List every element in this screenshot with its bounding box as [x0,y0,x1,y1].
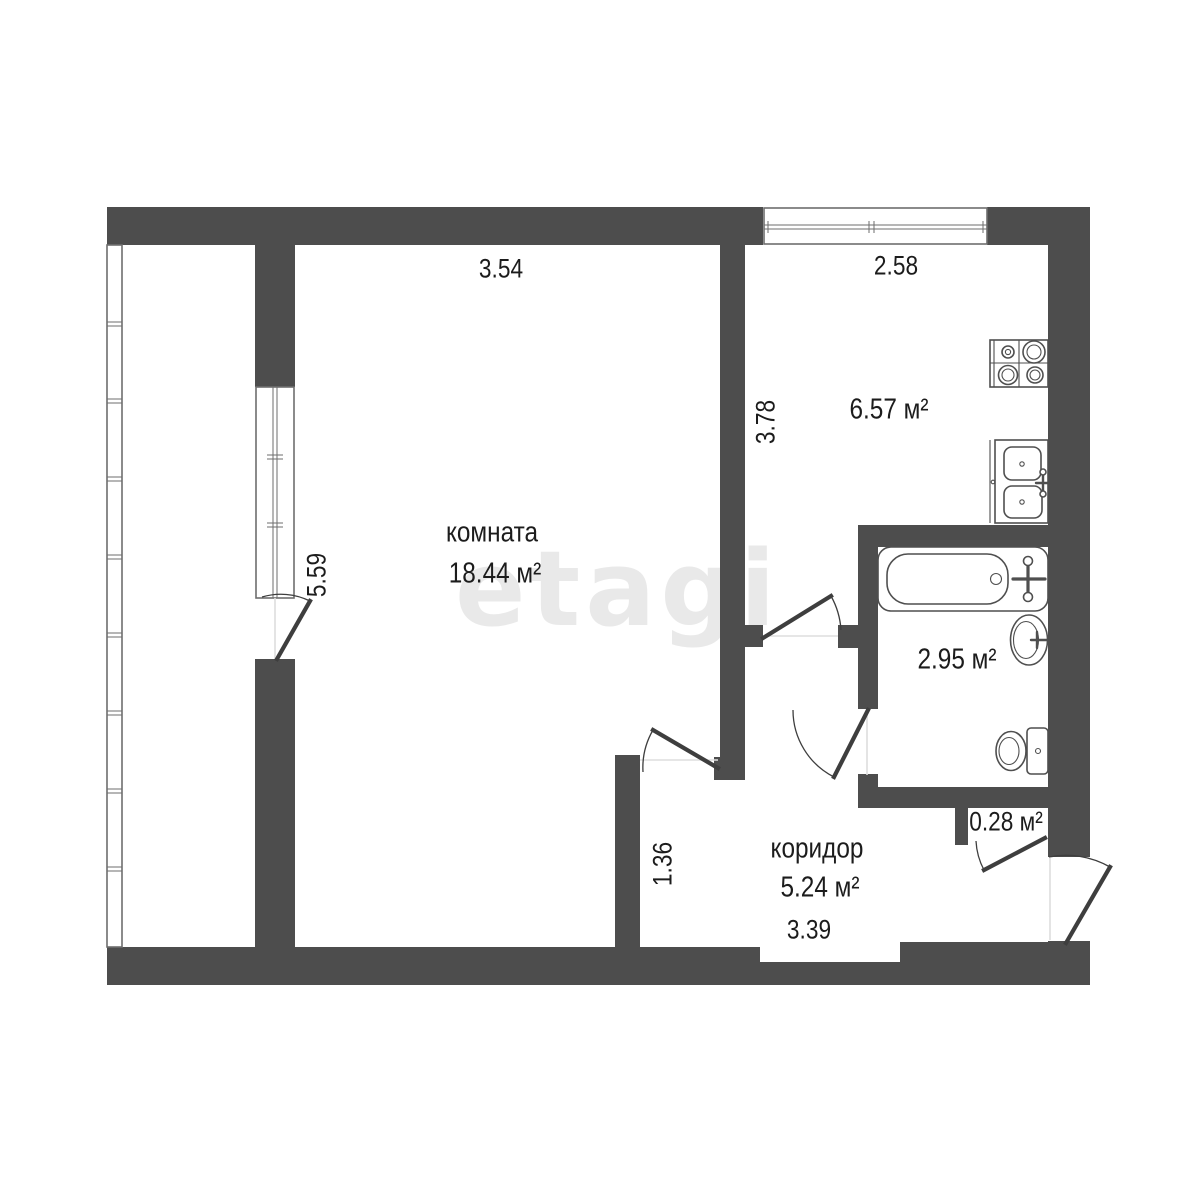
floor-plan: etagi [0,0,1194,1192]
door-kitchen [763,596,841,638]
toilet-icon [996,728,1048,774]
dim-room-depth: 5.59 [304,553,331,597]
room-name-label: комната [446,519,538,548]
dim-kitchen-depth: 3.78 [753,400,780,444]
dim-kitchen-width: 2.58 [874,253,918,280]
window-kitchen [764,208,987,244]
door-entrance [1049,855,1110,943]
door-room [640,730,718,772]
door-closet [976,838,1045,870]
bathtub-icon [878,547,1048,611]
closet-area-label: 0.28 м² [969,809,1043,836]
door-balcony [262,594,310,659]
plan-symbols [0,0,1194,1192]
dim-room-width: 3.54 [479,256,523,283]
window-balcony-glazing [107,245,122,947]
kitchen-area-label: 6.57 м² [849,396,928,425]
corridor-name-label: коридор [771,835,864,864]
dim-corridor-depth: 1.36 [650,842,677,886]
window-room-balcony [256,387,294,598]
corridor-area-label: 5.24 м² [780,874,859,903]
door-bathroom [793,709,868,777]
bathroom-sink-icon [1011,615,1048,665]
stove-icon [990,340,1048,387]
kitchen-sink-icon [990,440,1048,523]
room-area-label: 18.44 м² [449,560,542,589]
bathroom-area-label: 2.95 м² [917,646,996,675]
dim-corridor-width: 3.39 [787,917,831,944]
